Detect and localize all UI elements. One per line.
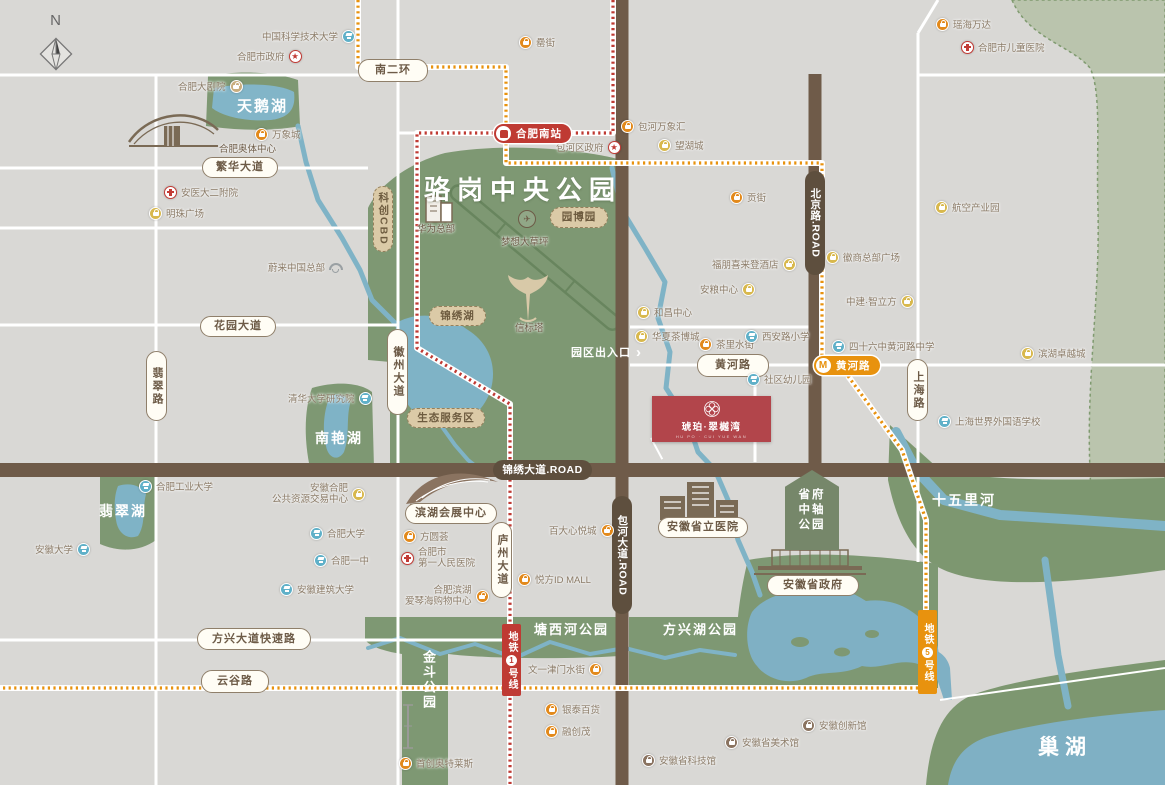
poi-hefei-city-gov: 合肥市政府 xyxy=(237,49,302,63)
poi-xianlu-primary: 西安路小学 xyxy=(745,329,810,343)
poi-icon xyxy=(935,201,948,214)
poi-yaohai-wanda: 瑶海万达 xyxy=(936,17,991,31)
poi-mixc: 万象城 xyxy=(255,127,301,141)
poi-anyida-2nd-hospital: 安医大二附院 xyxy=(164,185,238,199)
poi-no46-huanghe-school: 四十六中黄河路中学 xyxy=(832,339,935,353)
poi-huishang-hq-plaza: 徽商总部广场 xyxy=(826,250,900,264)
provincial-hospital-illustration xyxy=(658,478,752,522)
road-baohe-ave: 包河大道.ROAD xyxy=(612,496,632,614)
poi-icon xyxy=(621,120,634,133)
poi-binhu-zhuoyue-city: 滨湖卓越城 xyxy=(1021,346,1086,360)
poi-icon xyxy=(938,415,951,428)
binhu-convention-label: 滨湖会展中心 xyxy=(405,503,497,524)
poi-icon xyxy=(399,757,412,770)
chevron-right-icon: › xyxy=(636,347,642,358)
poi-mingzhu-plaza: 明珠广场 xyxy=(149,206,204,220)
poi-first-people-hospital: 合肥市第一人民医院 xyxy=(401,547,475,569)
zone-yuanboyuan: 园博园 xyxy=(550,207,608,228)
poi-icon xyxy=(901,295,914,308)
fangxinghu-park-label: 方兴湖公园 xyxy=(663,619,738,638)
road-shanghai: 上海路 xyxy=(907,359,928,421)
beacon-tower-illustration xyxy=(506,268,550,324)
poi-icon xyxy=(476,590,489,603)
poi-icon xyxy=(403,530,416,543)
metro-logo-icon xyxy=(816,358,831,373)
dream-lawn-label: 梦想大草坪 xyxy=(501,234,549,248)
park-gate-label: 园区出入口 › xyxy=(571,344,642,360)
poi-community-kindergarten: 社区幼儿园 xyxy=(747,372,812,386)
poi-hechang-center: 和昌中心 xyxy=(637,305,692,319)
anhui-gov-label: 安徽省政府 xyxy=(767,575,859,596)
feicui-lake-label: 翡翠湖 xyxy=(99,501,147,521)
poi-icon xyxy=(642,754,655,767)
poi-baohe-mixc: 包河万象汇 xyxy=(621,119,686,133)
poi-icon xyxy=(658,139,671,152)
poi-icon xyxy=(725,736,738,749)
poi-anhui-science-museum: 安徽省科技馆 xyxy=(642,753,716,767)
poi-baohe-district-gov: 包河区政府 xyxy=(556,140,621,154)
poi-icon xyxy=(329,262,340,273)
anhui-provincial-hospital-label: 安徽省立医院 xyxy=(658,517,748,538)
poi-hfut: 合肥工业大学 xyxy=(139,479,213,493)
poi-icon xyxy=(832,340,845,353)
zone-kechuang-cbd: 科创CBD xyxy=(373,186,393,252)
poi-icon xyxy=(1021,347,1034,360)
jindou-park-label: 金斗公园 xyxy=(419,650,438,710)
poi-huaxia-tea-city: 华夏茶博城 xyxy=(635,329,700,343)
poi-anhui-university: 安徽大学 xyxy=(35,542,90,556)
road-yungu: 云谷路 xyxy=(201,670,269,693)
poi-shanghai-foreign-school: 上海世界外国语学校 xyxy=(938,414,1041,428)
poi-icon xyxy=(635,330,648,343)
poi-icon xyxy=(802,719,815,732)
olympic-stadium-illustration xyxy=(126,104,222,154)
poi-icon xyxy=(149,207,162,220)
poi-nio-hq: 蔚来中国总部 xyxy=(268,260,340,274)
compass-icon xyxy=(33,30,79,78)
station-huanghe-road: 黄河路 xyxy=(814,356,880,375)
poi-icon xyxy=(699,338,712,351)
poi-hefei-university: 合肥大学 xyxy=(310,526,365,540)
nanyan-lake-label: 南艳湖 xyxy=(315,428,363,448)
poi-icon xyxy=(519,36,532,49)
project-name: 琥珀·翠樾湾 xyxy=(682,419,742,433)
poi-anhui-innovation-hall: 安徽创新馆 xyxy=(802,718,867,732)
convention-center-illustration xyxy=(402,468,502,508)
poi-aegean-mall: 合肥滨湖爱琴海购物中心 xyxy=(405,585,489,607)
poi-icon xyxy=(280,583,293,596)
road-nanerhuan: 南二环 xyxy=(358,59,428,82)
poi-icon xyxy=(637,306,650,319)
shiwuli-river-label: 十五里河 xyxy=(932,490,996,510)
poi-wanghucheng: 望湖城 xyxy=(658,138,704,152)
station-hefei-south: 合肥南站 xyxy=(494,124,571,143)
poi-icon xyxy=(745,330,758,343)
poi-gong-street: 贡街 xyxy=(730,190,766,204)
poi-icon xyxy=(230,80,243,93)
poi-icon xyxy=(401,552,414,565)
poi-icon xyxy=(742,283,755,296)
project-emblem-icon xyxy=(702,400,722,418)
poi-zhongjian-zhilifang: 中建·智立方 xyxy=(846,294,914,308)
poi-public-resource-center: 安徽合肥公共资源交易中心 xyxy=(272,483,365,505)
compass: N xyxy=(33,12,79,83)
poi-icon xyxy=(826,251,839,264)
poi-grand-theatre: 合肥大剧院 xyxy=(178,79,243,93)
poi-aviation-park: 航空产业园 xyxy=(935,200,1000,214)
poi-icon xyxy=(545,703,558,716)
poi-anhui-art-museum: 安徽省美术馆 xyxy=(725,735,799,749)
train-icon xyxy=(496,126,511,141)
road-feicui: 翡翠路 xyxy=(146,351,167,421)
poi-icon xyxy=(730,191,743,204)
road-fanhua-ave: 繁华大道 xyxy=(202,157,278,178)
scale-bar xyxy=(400,702,416,752)
poi-icon xyxy=(936,18,949,31)
zone-eco-service: 生态服务区 xyxy=(407,408,485,428)
luogang-park-title: 骆岗中央公园 xyxy=(424,170,622,207)
project-sign: 琥珀·翠樾湾 HU PO · CUI YUE WAN xyxy=(652,396,771,442)
poi-icon xyxy=(77,543,90,556)
poi-icon xyxy=(589,663,602,676)
poi-hefei-no1-school: 合肥一中 xyxy=(314,553,369,567)
poi-anhui-jianzhu-university: 安徽建筑大学 xyxy=(280,582,354,596)
poi-icon xyxy=(352,488,365,501)
road-jinxiu-ave: 锦绣大道.ROAD xyxy=(493,460,592,480)
poi-sunac-mall: 融创茂 xyxy=(545,724,591,738)
road-beijing: 北京路.ROAD xyxy=(805,171,825,275)
metro-line5-label: 地铁5号线 xyxy=(918,610,937,694)
poi-tsinghua-institute: 清华大学研究院 xyxy=(288,391,372,405)
poi-icon xyxy=(310,527,323,540)
road-huizhou-ave: 徽州大道 xyxy=(387,329,408,415)
chaohu-lake-label: 巢湖 xyxy=(1038,731,1092,761)
poi-icon xyxy=(342,30,355,43)
poi-children-hospital: 合肥市儿童医院 xyxy=(961,40,1045,54)
provincial-axis-park: 省府 中轴 公园 xyxy=(785,470,839,550)
poi-icon xyxy=(289,50,302,63)
poi-intime: 银泰百货 xyxy=(545,702,600,716)
road-fangxing-expwy: 方兴大道快速路 xyxy=(197,628,311,650)
zone-jinxiu-lake: 锦绣湖 xyxy=(429,306,486,326)
poi-baida-xinyuecheng: 百大心悦城 xyxy=(549,523,614,537)
poi-lei-street: 罍街 xyxy=(519,35,555,49)
swan-lake-label: 天鹅湖 xyxy=(237,95,288,116)
compass-n-label: N xyxy=(33,12,79,29)
poi-icon xyxy=(139,480,152,493)
beacon-tower-label: 信标塔 xyxy=(515,320,544,334)
poi-icon xyxy=(314,554,327,567)
poi-icon xyxy=(608,141,621,154)
location-map: N 骆岗中央公园 天鹅湖 南艳湖 翡翠湖 金斗公园 塘西河公园 xyxy=(0,0,1165,785)
poi-four-points-hotel: 福朋喜来登酒店 xyxy=(712,257,796,271)
poi-icon xyxy=(359,392,372,405)
dream-lawn-plane-icon xyxy=(518,210,536,228)
poi-icon xyxy=(601,524,614,537)
metro-line1-label: 地铁1号线 xyxy=(502,624,521,696)
poi-fangyuanhui: 方圆荟 xyxy=(403,529,449,543)
poi-icon xyxy=(164,186,177,199)
huawei-hq-label: 华为总部 xyxy=(417,221,455,235)
poi-icon xyxy=(783,258,796,271)
poi-icon xyxy=(961,41,974,54)
road-luzhou-ave: 庐州大道 xyxy=(491,522,512,598)
poi-icon xyxy=(545,725,558,738)
project-subtitle: HU PO · CUI YUE WAN xyxy=(676,434,747,439)
poi-icon xyxy=(518,573,531,586)
poi-icon xyxy=(255,128,268,141)
poi-anliang-center: 安粮中心 xyxy=(700,282,755,296)
poi-icon xyxy=(747,373,760,386)
poi-wenyi-jinmen-street: 文一津门水街 xyxy=(528,662,602,676)
tangxihe-park-label: 塘西河公园 xyxy=(534,619,609,638)
poi-shouchuang-outlets: 首创奥特莱斯 xyxy=(399,756,473,770)
poi-ustc: 中国科学技术大学 xyxy=(262,29,355,43)
olympic-center-label: 合肥奥体中心 xyxy=(219,141,276,155)
road-huayuan-ave: 花园大道 xyxy=(200,316,276,337)
poi-yuefang-id-mall: 悦方ID MALL xyxy=(518,572,591,586)
